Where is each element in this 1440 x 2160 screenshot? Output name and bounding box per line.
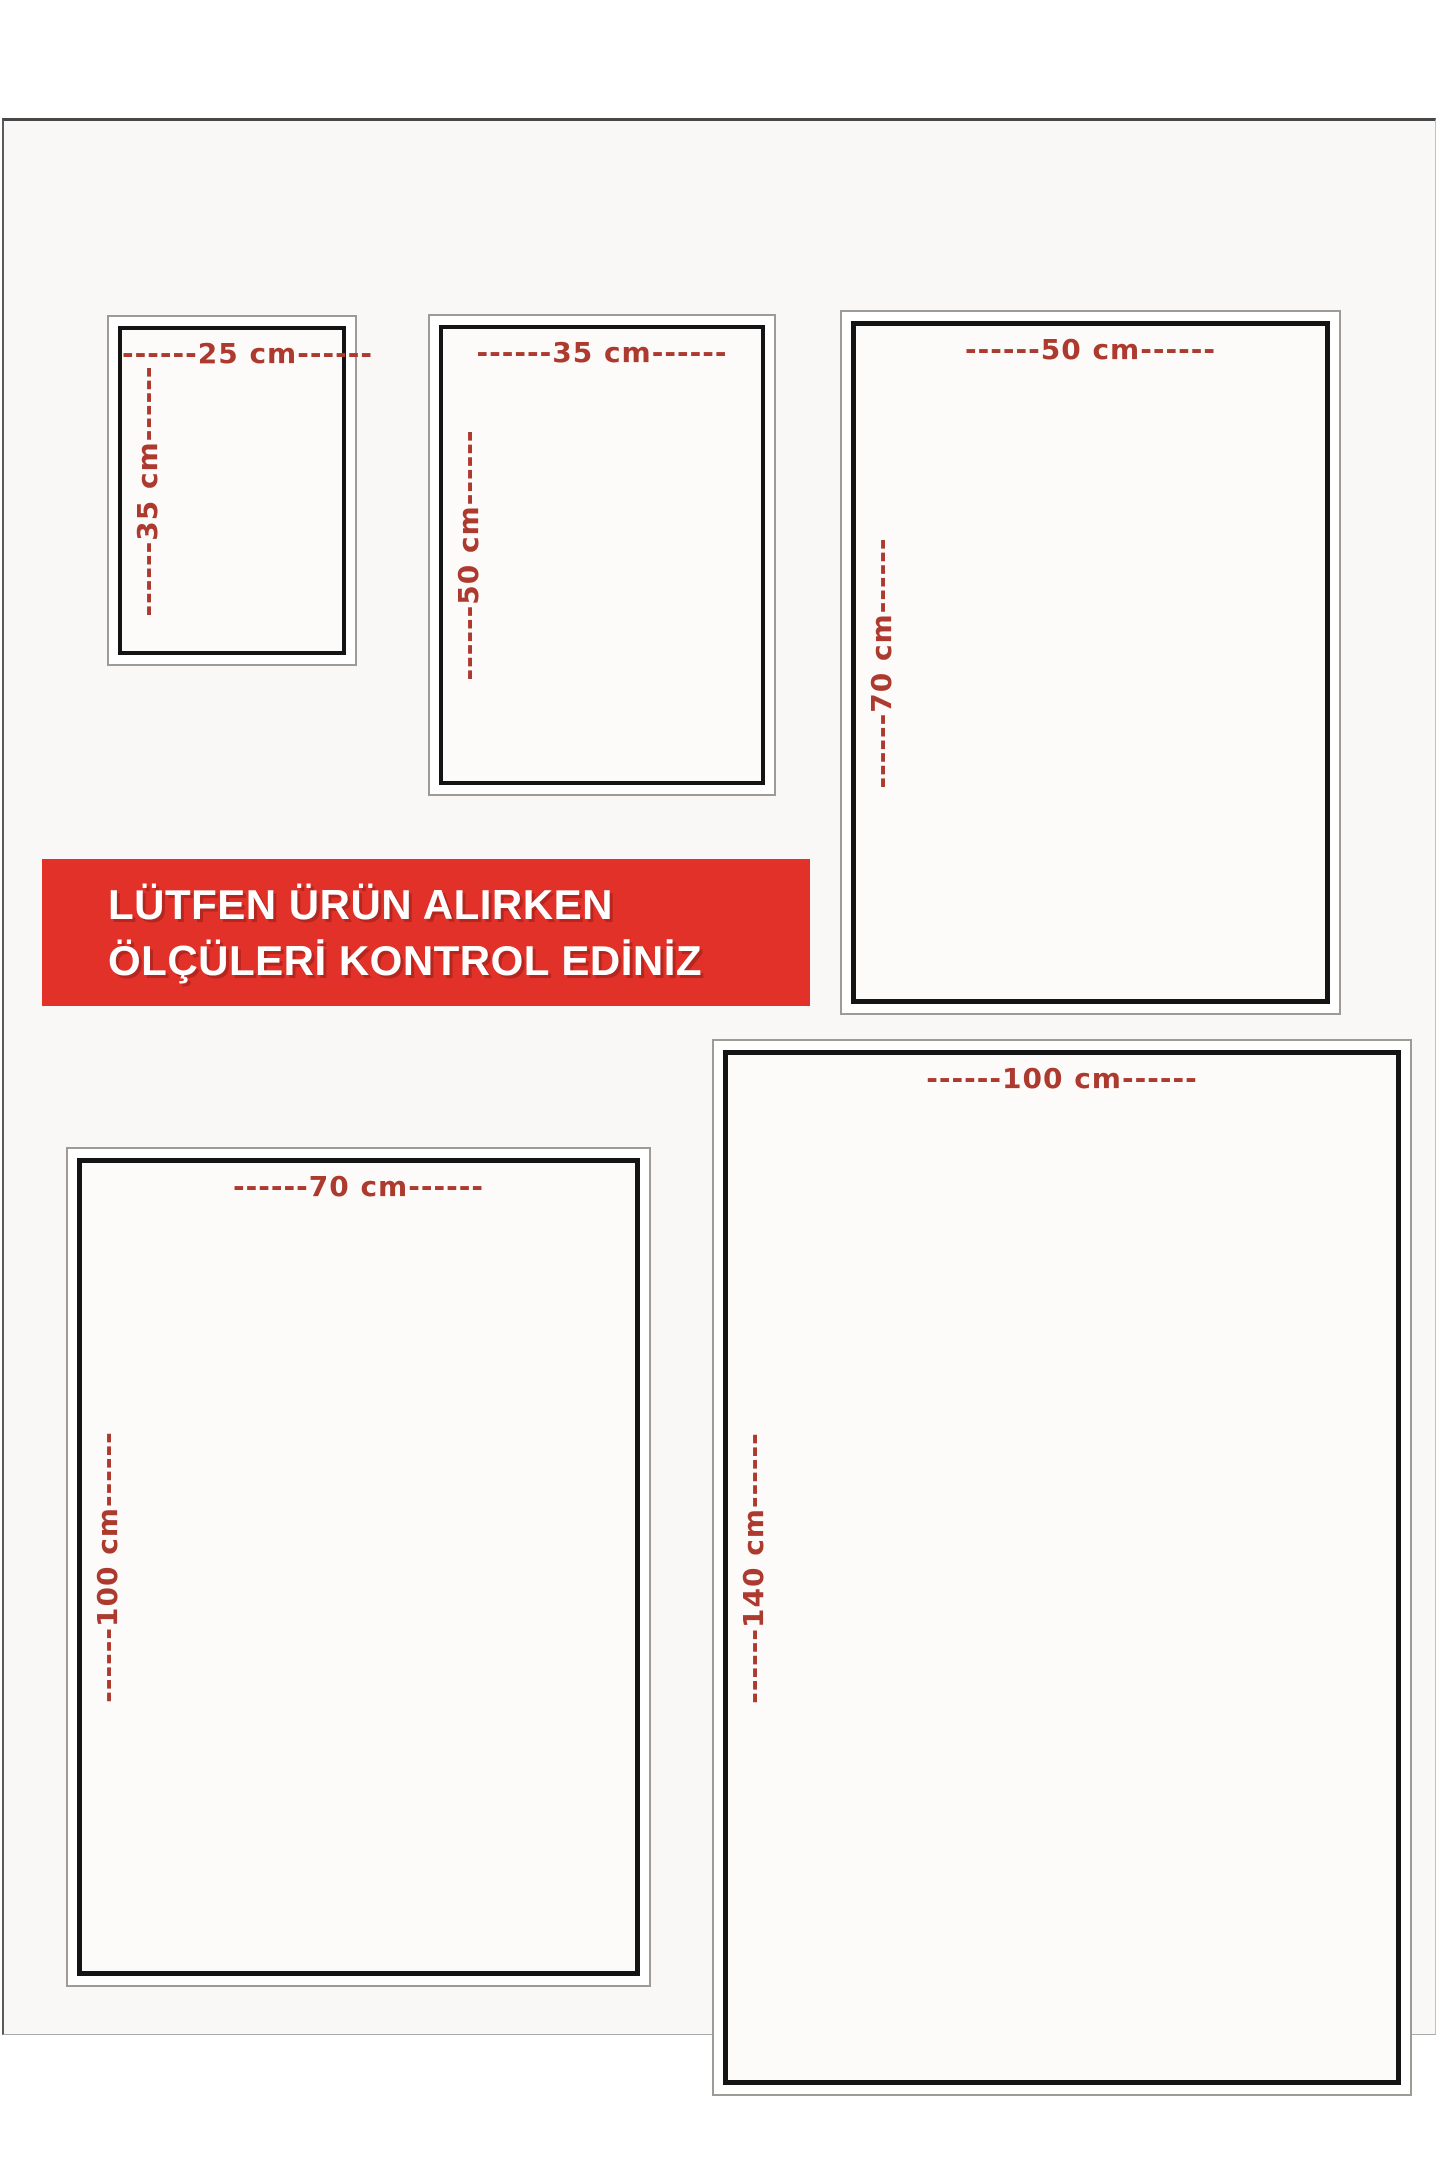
size-box-50x70: ------50 cm------ ------70 cm------ [840, 310, 1341, 1015]
notice-banner-line2: ÖLÇÜLERİ KONTROL EDİNİZ [108, 933, 810, 989]
size-box-frame: ------25 cm------ ------35 cm------ [118, 326, 346, 655]
notice-banner: LÜTFEN ÜRÜN ALIRKEN ÖLÇÜLERİ KONTROL EDİ… [42, 859, 810, 1006]
width-dimension-label: ------35 cm------ [443, 339, 761, 367]
size-box-frame: ------50 cm------ ------70 cm------ [851, 321, 1330, 1004]
size-box-frame: ------100 cm------ ------140 cm------ [723, 1050, 1401, 2085]
height-dimension-label: ------70 cm------ [868, 537, 896, 788]
width-dimension-label: ------25 cm------ [122, 340, 342, 368]
height-dimension-label: ------100 cm------ [94, 1431, 122, 1702]
notice-banner-line1: LÜTFEN ÜRÜN ALIRKEN [108, 877, 810, 933]
height-dimension-label: ------140 cm------ [740, 1432, 768, 1703]
content-frame: ------25 cm------ ------35 cm------ ----… [2, 118, 1436, 2035]
width-dimension-label: ------70 cm------ [82, 1173, 635, 1201]
height-dimension-label: ------35 cm------ [134, 365, 162, 616]
height-dimension-label: ------50 cm------ [455, 430, 483, 681]
size-box-100x140: ------100 cm------ ------140 cm------ [712, 1039, 1412, 2096]
size-box-25x35: ------25 cm------ ------35 cm------ [107, 315, 357, 666]
width-dimension-label: ------100 cm------ [728, 1065, 1396, 1093]
size-box-35x50: ------35 cm------ ------50 cm------ [428, 314, 776, 796]
size-guide-page: ------25 cm------ ------35 cm------ ----… [0, 0, 1440, 2160]
size-box-frame: ------35 cm------ ------50 cm------ [439, 325, 765, 785]
width-dimension-label: ------50 cm------ [856, 336, 1325, 364]
size-box-70x100: ------70 cm------ ------100 cm------ [66, 1147, 651, 1987]
size-box-frame: ------70 cm------ ------100 cm------ [77, 1158, 640, 1976]
